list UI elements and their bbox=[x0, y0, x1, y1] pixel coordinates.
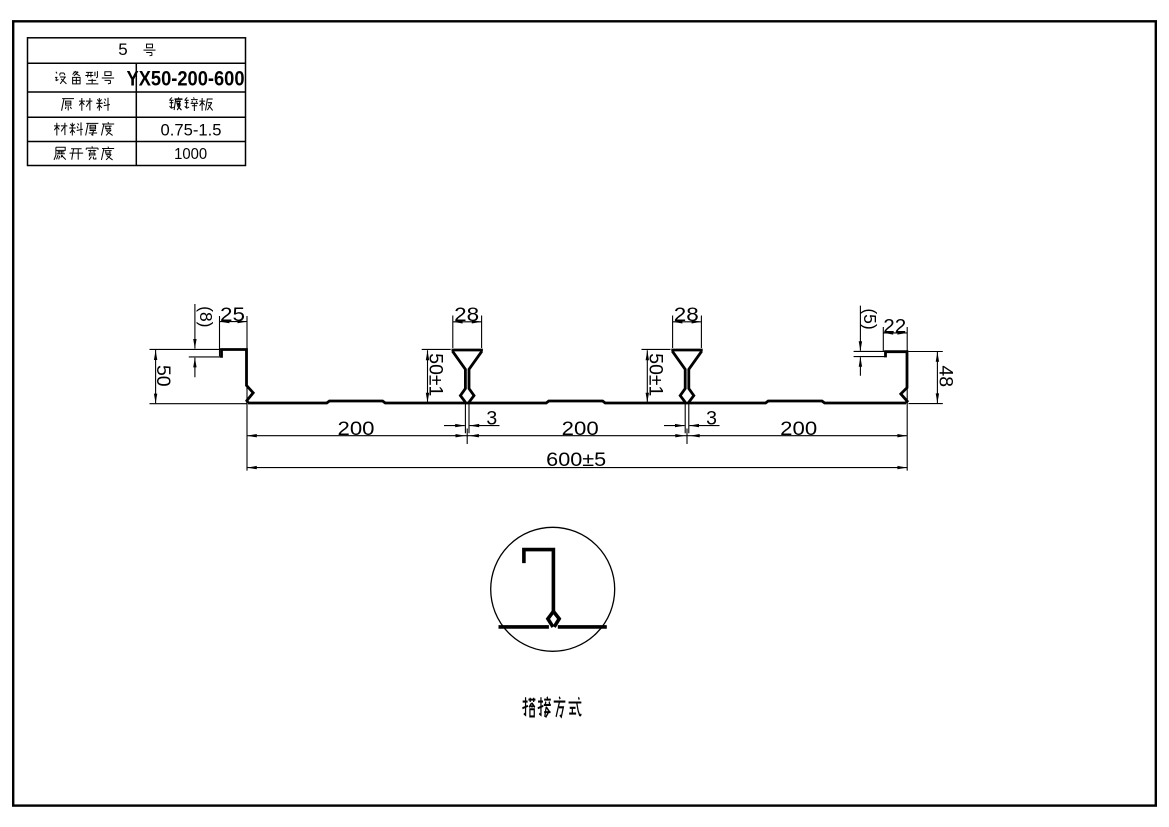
svg-text:0.75-1.5: 0.75-1.5 bbox=[161, 121, 222, 140]
svg-text:(5): (5) bbox=[860, 308, 880, 329]
svg-text:50±1: 50±1 bbox=[425, 353, 447, 396]
svg-text:48: 48 bbox=[935, 365, 957, 387]
svg-text:50±1: 50±1 bbox=[644, 353, 666, 396]
svg-text:22: 22 bbox=[883, 315, 906, 337]
svg-text:28: 28 bbox=[454, 304, 479, 326]
svg-text:28: 28 bbox=[674, 304, 699, 326]
svg-text:(8): (8) bbox=[196, 306, 216, 327]
svg-text:1000: 1000 bbox=[174, 146, 207, 163]
svg-text:200: 200 bbox=[562, 418, 599, 440]
svg-text:50: 50 bbox=[152, 365, 174, 387]
svg-text:YX50-200-600: YX50-200-600 bbox=[127, 67, 245, 91]
svg-text:200: 200 bbox=[780, 418, 817, 440]
svg-text:3: 3 bbox=[706, 407, 717, 429]
svg-text:200: 200 bbox=[338, 418, 375, 440]
svg-text:25: 25 bbox=[220, 304, 245, 326]
svg-text:5: 5 bbox=[118, 40, 127, 59]
svg-text:3: 3 bbox=[486, 407, 497, 429]
svg-text:600±5: 600±5 bbox=[546, 449, 606, 471]
